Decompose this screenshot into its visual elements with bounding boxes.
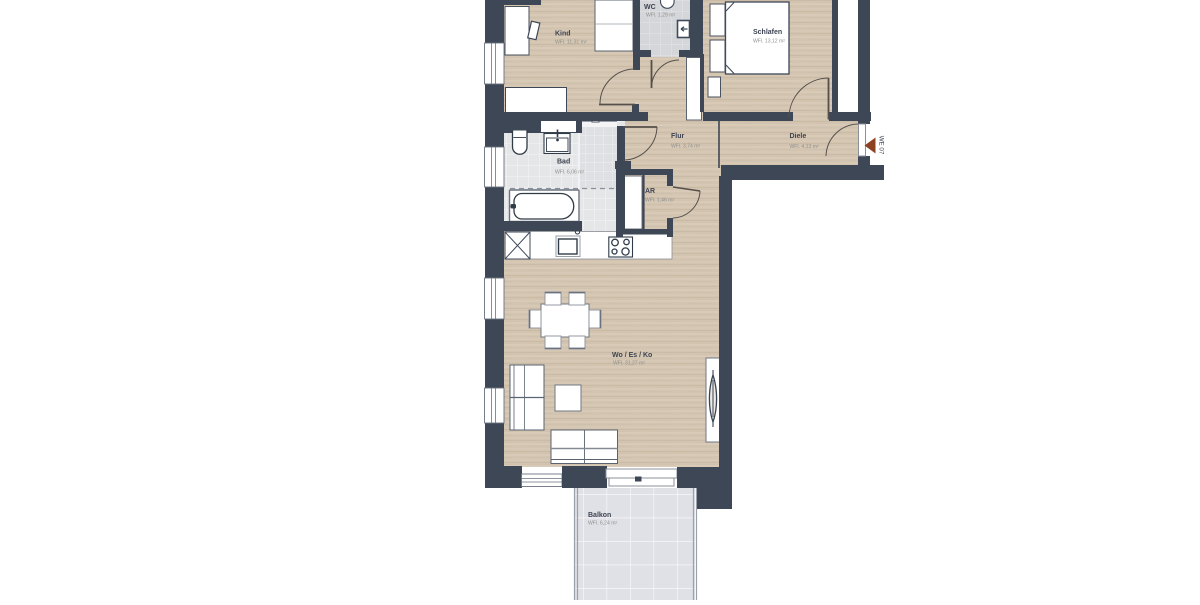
svg-text:WFl. 11,31 m²: WFl. 11,31 m² — [555, 40, 587, 46]
svg-text:WFl. 3,74 m²: WFl. 3,74 m² — [671, 144, 700, 150]
svg-text:Balkon: Balkon — [588, 512, 611, 519]
svg-text:WE 07: WE 07 — [878, 136, 885, 155]
svg-text:Diele: Diele — [790, 133, 807, 140]
svg-text:Wo / Es / Ko: Wo / Es / Ko — [612, 352, 652, 359]
svg-text:WFl. 1,29 m²: WFl. 1,29 m² — [646, 13, 675, 19]
svg-text:WFl. 31,27 m²: WFl. 31,27 m² — [613, 361, 645, 367]
svg-text:Kind: Kind — [555, 31, 571, 38]
svg-text:Flur: Flur — [671, 133, 684, 140]
svg-text:WFl. 4,13 m²: WFl. 4,13 m² — [790, 144, 819, 150]
svg-text:WC: WC — [644, 4, 656, 11]
svg-text:WFl. 13,12 m²: WFl. 13,12 m² — [753, 39, 785, 45]
svg-text:WFl. 6,06 m²: WFl. 6,06 m² — [555, 170, 584, 176]
svg-text:Bad: Bad — [557, 159, 570, 166]
svg-text:Schlafen: Schlafen — [753, 29, 782, 36]
svg-text:WFl. 6,24 m²: WFl. 6,24 m² — [588, 521, 617, 527]
svg-text:AR: AR — [645, 188, 655, 195]
svg-text:WFl. 1,46 m²: WFl. 1,46 m² — [645, 198, 674, 204]
